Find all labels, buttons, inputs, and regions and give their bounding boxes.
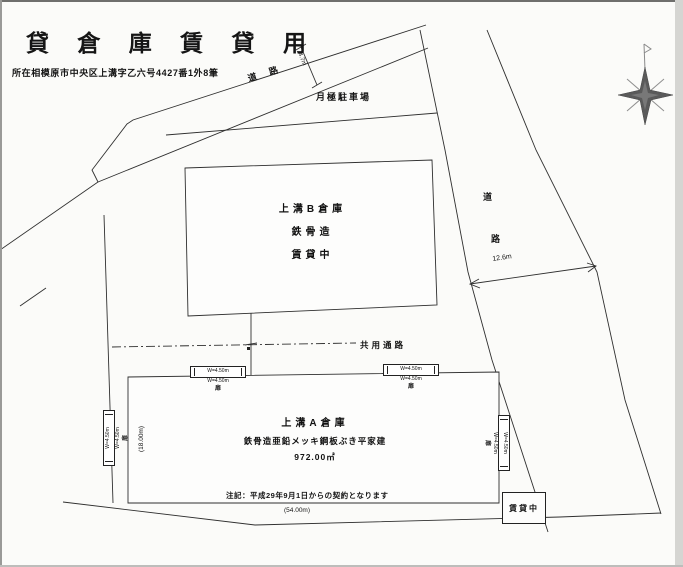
plot-divider-mark xyxy=(247,347,250,350)
building-a-area: 972.00㎡ xyxy=(195,451,435,463)
shutter-box: W=4.50m xyxy=(498,415,510,471)
shutter-width-label: W=4.50m xyxy=(491,415,498,471)
building-a-textblock: 上溝A倉庫 鉄骨造亜鉛メッキ鋼板ぶき平家建 972.00㎡ xyxy=(195,414,435,463)
scan-edge-left xyxy=(0,0,2,567)
building-b-name: 上溝B倉庫 xyxy=(200,198,425,221)
shutter-box: W=4.50m xyxy=(103,410,115,466)
door-label: 扉 xyxy=(483,415,491,471)
scan-edge-top xyxy=(0,0,683,2)
frontage-dimension: (54.00m) xyxy=(284,507,310,514)
shutter-symbol-top-right: W=4.50m W=4.50m 扉 xyxy=(383,364,439,391)
door-label: 扉 xyxy=(190,385,246,393)
door-label: 扉 xyxy=(383,383,439,391)
shared-passage-label: 共用通路 xyxy=(360,339,406,351)
site-plan-drawing xyxy=(0,0,683,567)
door-label: 扉 xyxy=(122,410,130,466)
building-b-textblock: 上溝B倉庫 鉄骨造 賃貸中 xyxy=(200,198,425,267)
vacancy-status-badge: 賃貸中 xyxy=(502,492,546,524)
shutter-symbol-west: W=4.50m W=4.50m 扉 xyxy=(103,410,130,466)
road-right-label-bottom: 路 xyxy=(491,232,500,245)
page-title: 貸 倉 庫 賃 貸 用 xyxy=(26,24,317,58)
building-a-structure: 鉄骨造亜鉛メッキ鋼板ぶき平家建 xyxy=(195,435,435,447)
shutter-symbol-top-left: W=4.50m W=4.50m 扉 xyxy=(190,366,246,393)
contract-note: 注記：平成29年9月1日からの契約となります xyxy=(226,490,388,501)
dimension-12-6m xyxy=(470,263,596,288)
building-a-name: 上溝A倉庫 xyxy=(195,414,435,429)
shared-passage-line xyxy=(112,343,356,347)
parking-boundary-line xyxy=(166,113,437,135)
road-tail-line xyxy=(20,288,46,306)
building-b-structure: 鉄骨造 xyxy=(200,221,425,244)
shutter-width-label: W=4.50m xyxy=(115,410,122,466)
north-compass-icon xyxy=(614,40,678,140)
road-right-label-top: 道 xyxy=(483,190,492,203)
shutter-symbol-east: W=4.50m W=4.50m 扉 xyxy=(483,415,510,471)
building-b-status: 賃貸中 xyxy=(200,244,425,267)
shutter-width-label: W=4.50m xyxy=(383,376,439,383)
property-address: 所在相模原市中央区上溝字乙六号4427番1外8筆 xyxy=(12,66,218,79)
scan-edge-right xyxy=(675,0,683,567)
shutter-width-label: W=4.50m xyxy=(190,378,246,385)
south-boundary-line xyxy=(63,502,661,525)
depth-dimension: (18.00m) xyxy=(138,426,145,452)
shutter-box: W=4.50m xyxy=(383,364,439,376)
shutter-box: W=4.50m xyxy=(190,366,246,378)
monthly-parking-label: 月極駐車場 xyxy=(316,90,371,103)
site-plan-page: 貸 倉 庫 賃 貸 用 所在相模原市中央区上溝字乙六号4427番1外8筆 道路 … xyxy=(0,0,683,567)
